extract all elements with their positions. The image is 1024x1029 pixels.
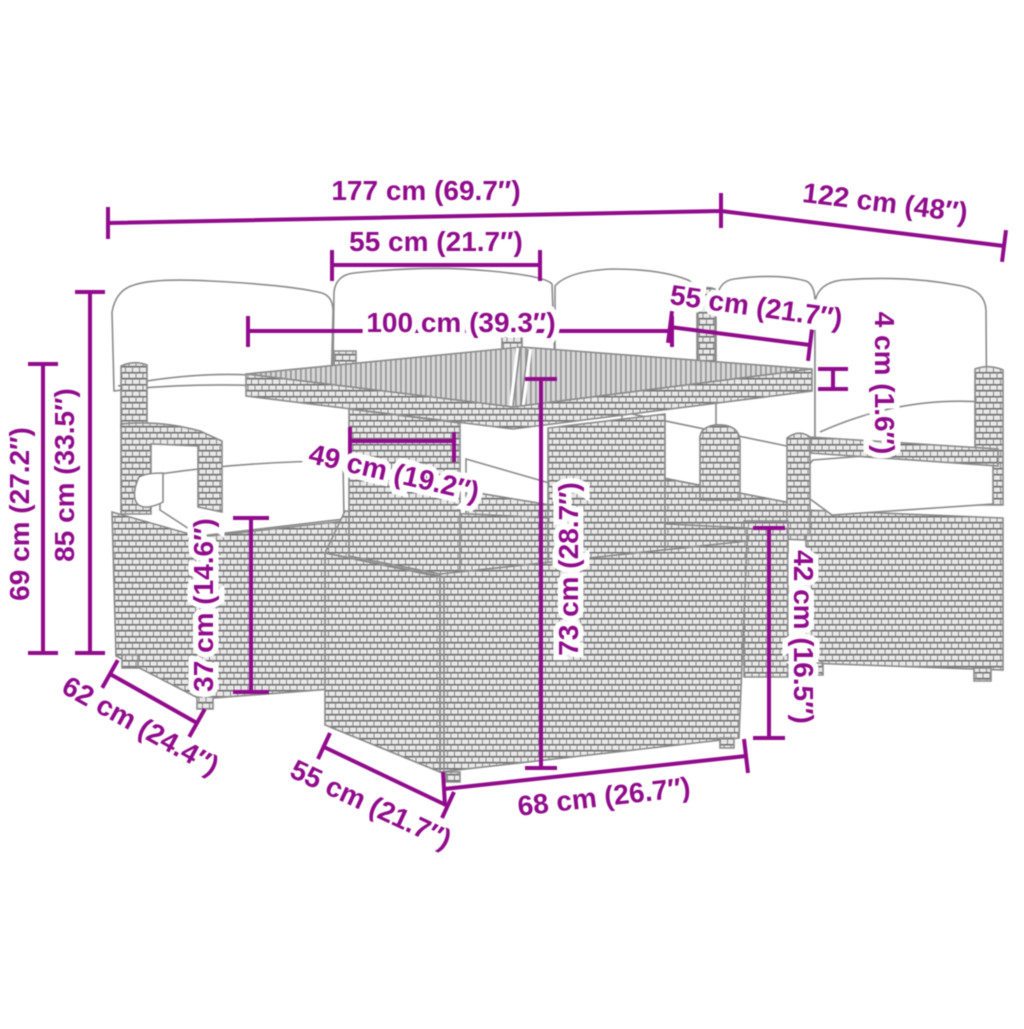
svg-text:177 cm (69.7″): 177 cm (69.7″) — [331, 175, 520, 206]
svg-text:55 cm (21.7″): 55 cm (21.7″) — [349, 226, 523, 257]
svg-text:37 cm (14.6″): 37 cm (14.6″) — [188, 518, 219, 692]
svg-text:85 cm (33.5″): 85 cm (33.5″) — [49, 388, 80, 562]
svg-text:42 cm (16.5″): 42 cm (16.5″) — [788, 550, 819, 724]
svg-text:69 cm (27.2″): 69 cm (27.2″) — [4, 427, 35, 601]
svg-text:4 cm (1.6″): 4 cm (1.6″) — [869, 312, 900, 455]
svg-text:100 cm (39.3″): 100 cm (39.3″) — [366, 307, 555, 338]
svg-text:73 cm (28.7″): 73 cm (28.7″) — [553, 482, 584, 656]
